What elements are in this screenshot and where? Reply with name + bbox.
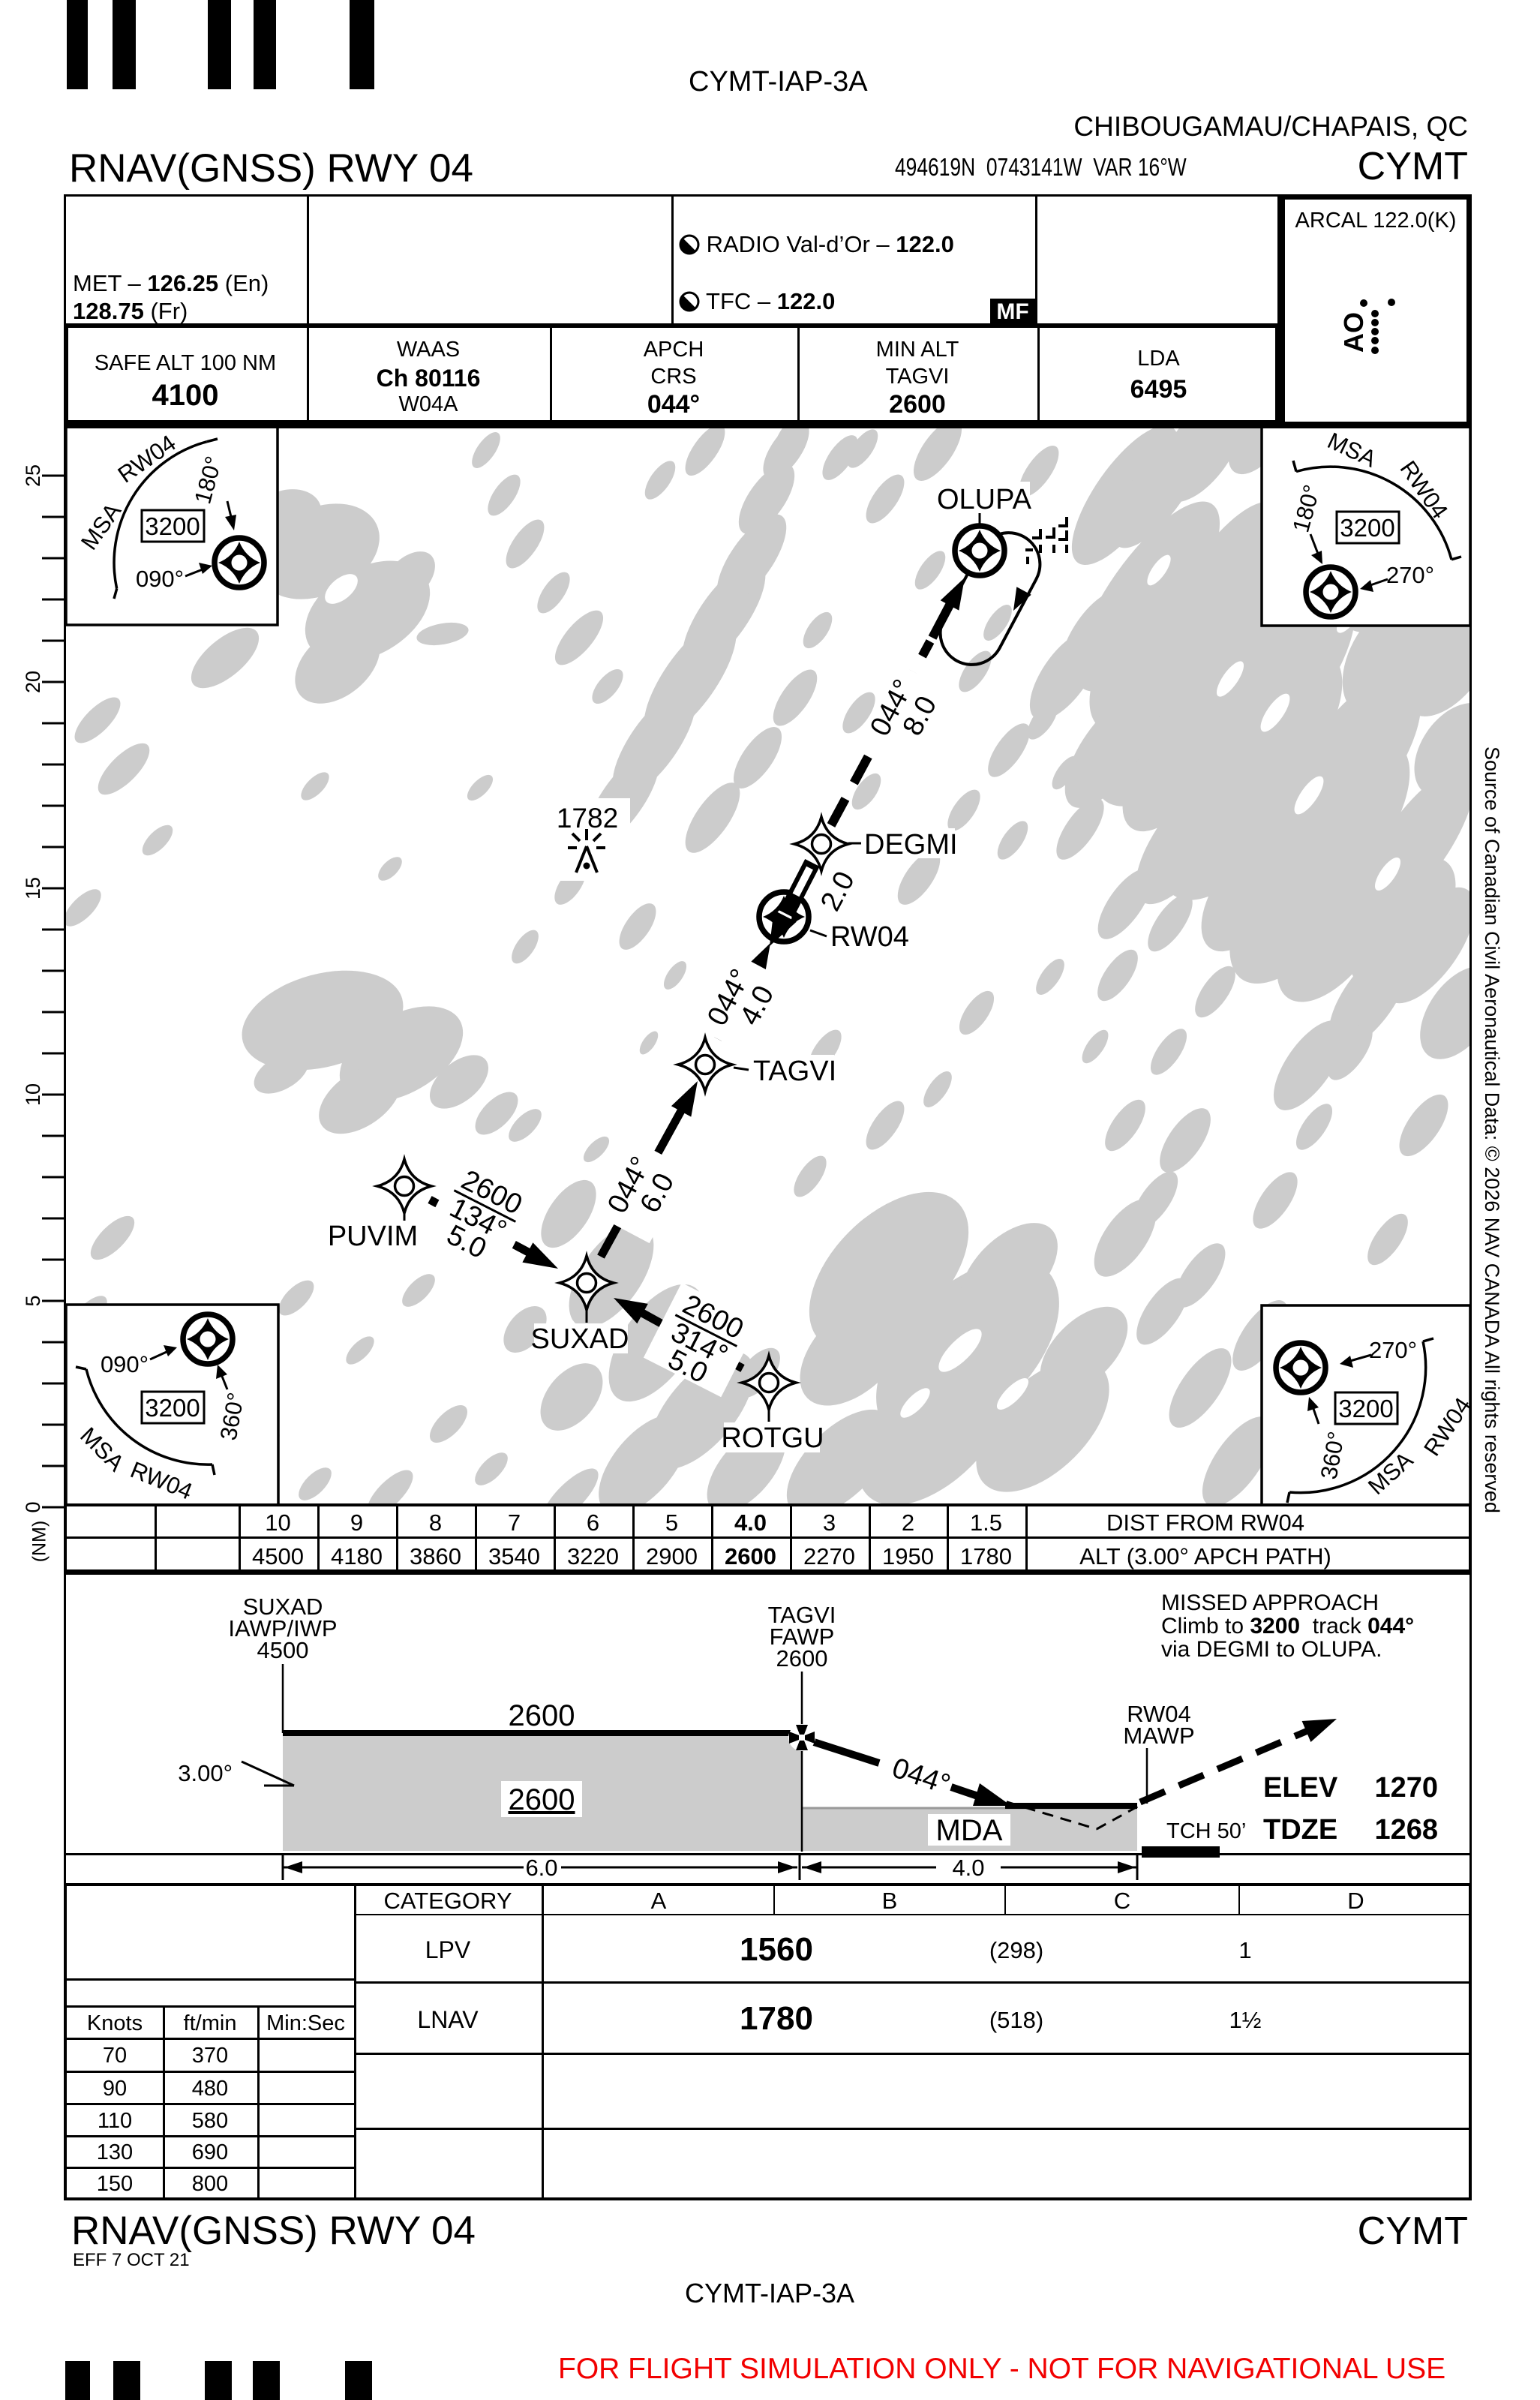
svg-text:SUXAD: SUXAD — [531, 1323, 629, 1355]
svg-text:ROTGU: ROTGU — [721, 1422, 824, 1454]
svg-text:5: 5 — [22, 1295, 44, 1306]
svg-text:1782: 1782 — [557, 803, 618, 834]
svg-text:OLUPA: OLUPA — [937, 484, 1032, 515]
svg-text:15: 15 — [22, 877, 44, 900]
svg-text:0: 0 — [22, 1501, 44, 1512]
svg-text:RW04: RW04 — [830, 921, 909, 953]
svg-text:25: 25 — [22, 464, 44, 487]
svg-text:090°: 090° — [101, 1351, 149, 1377]
svg-text:PUVIM: PUVIM — [328, 1221, 418, 1252]
svg-text:090°: 090° — [136, 566, 184, 592]
svg-text:270°: 270° — [1369, 1337, 1417, 1363]
svg-text:3200: 3200 — [1340, 514, 1394, 542]
svg-text:3200: 3200 — [145, 512, 200, 540]
svg-text:DEGMI: DEGMI — [864, 829, 958, 861]
svg-text:270°: 270° — [1386, 562, 1434, 588]
svg-text:3200: 3200 — [1338, 1395, 1393, 1422]
svg-text:10: 10 — [22, 1083, 44, 1106]
svg-text:TAGVI: TAGVI — [753, 1056, 836, 1087]
svg-text:3200: 3200 — [145, 1394, 200, 1422]
svg-text:20: 20 — [22, 671, 44, 693]
